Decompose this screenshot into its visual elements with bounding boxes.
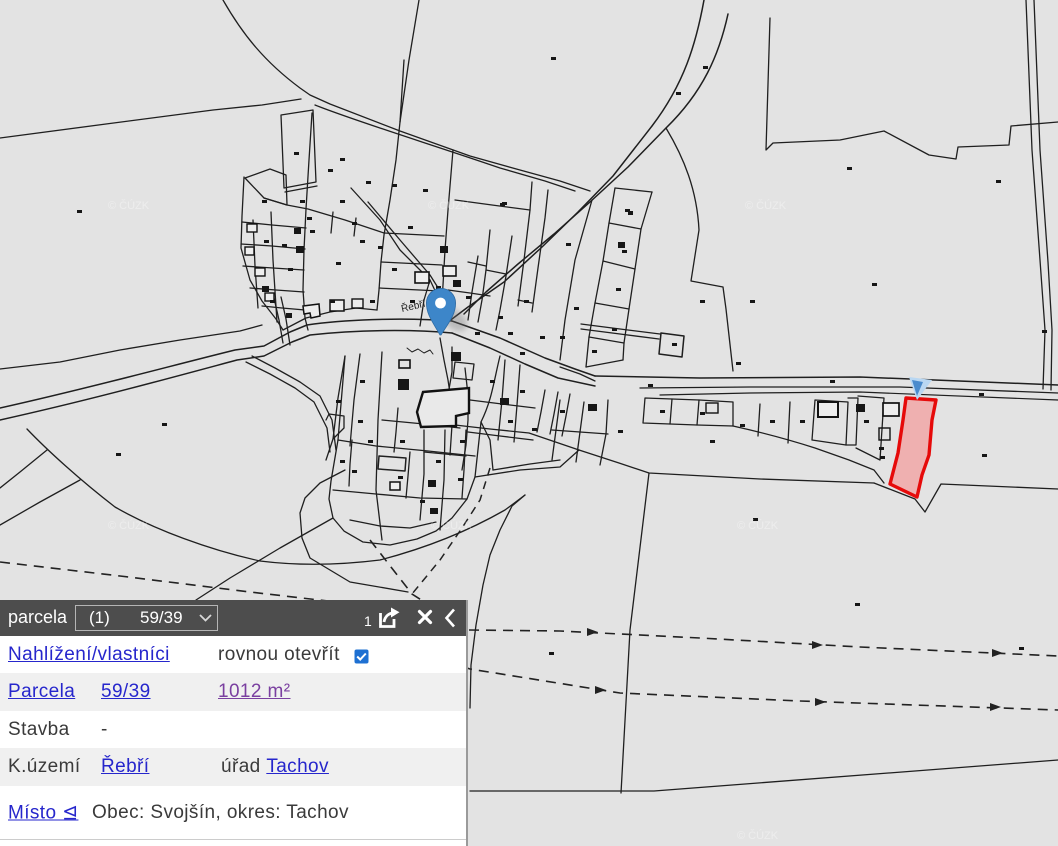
svg-text:© ČÚZK: © ČÚZK (431, 519, 473, 532)
svg-text:© ČÚZK: © ČÚZK (108, 519, 150, 532)
svg-text:© ČÚZK: © ČÚZK (745, 199, 787, 212)
svg-text:© ČÚZK: © ČÚZK (737, 519, 779, 532)
svg-text:© ČÚZK: © ČÚZK (108, 199, 150, 212)
svg-text:© ČÚZK: © ČÚZK (737, 829, 779, 842)
svg-text:© ČÚZK: © ČÚZK (428, 199, 470, 212)
